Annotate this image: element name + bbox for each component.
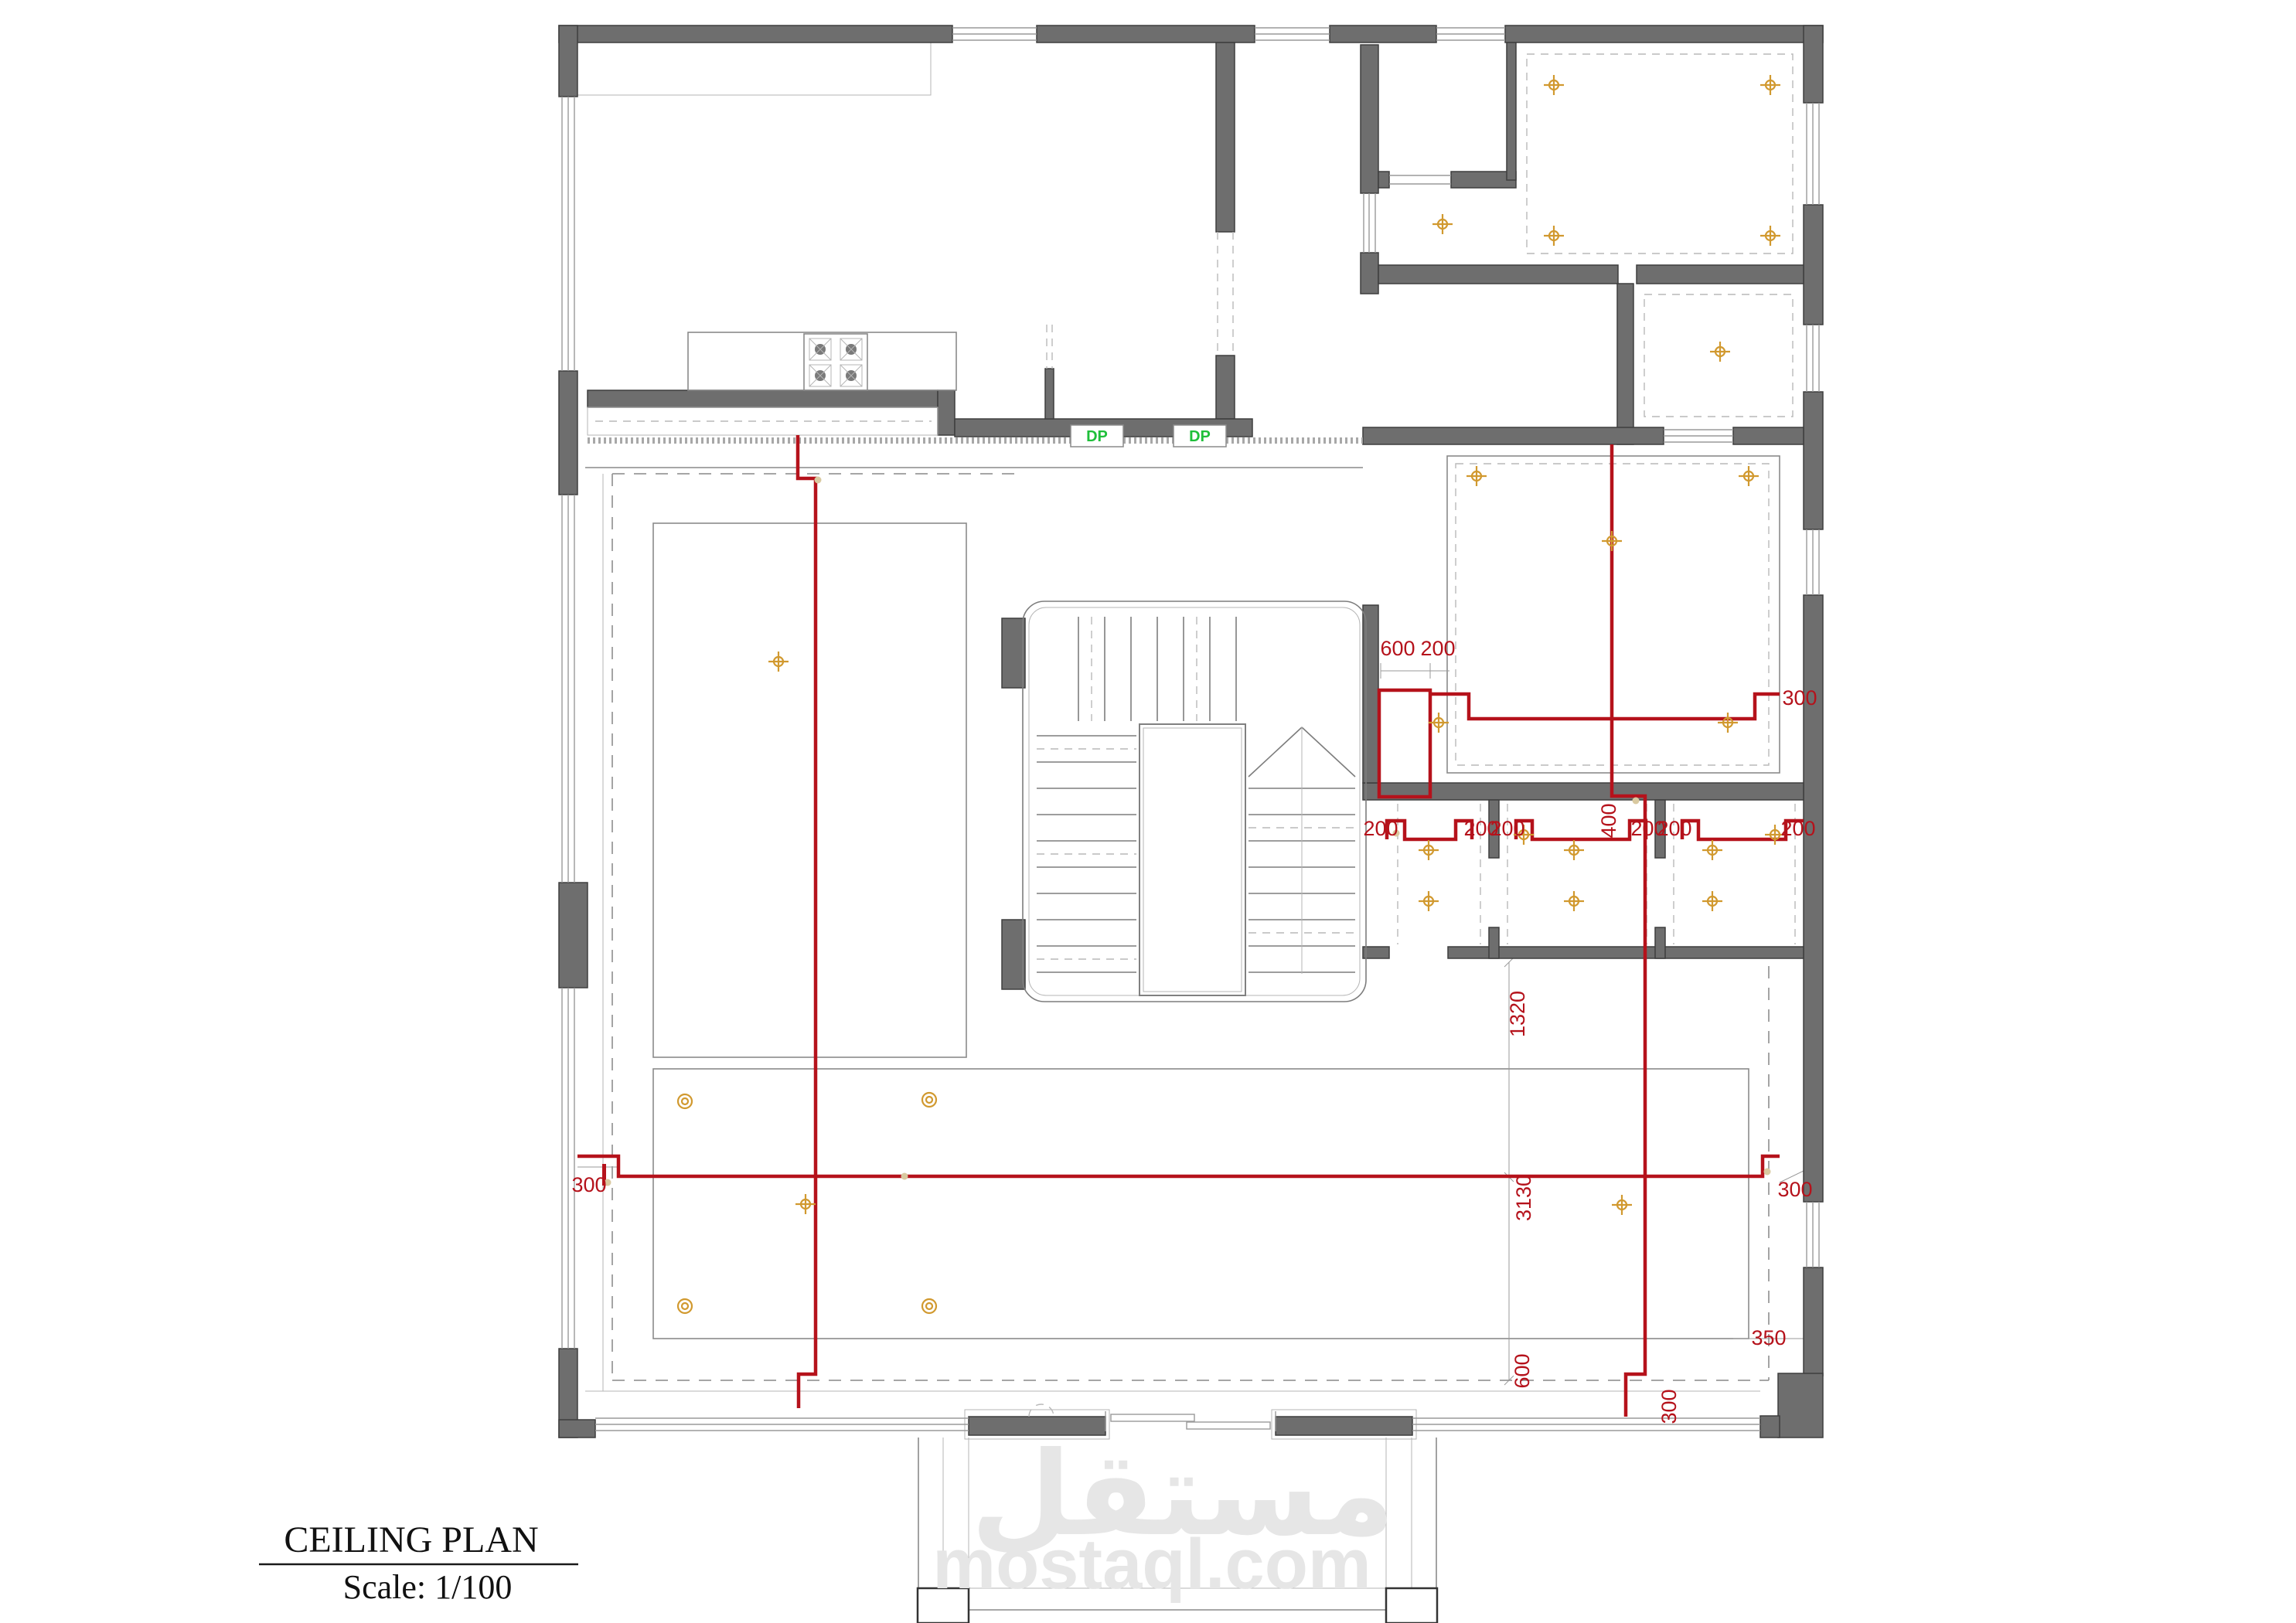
- window-bottom-left: [595, 1418, 969, 1431]
- window-master: [1664, 430, 1733, 442]
- red-line-bottom-horizontal: [577, 1156, 1780, 1176]
- ceiling-light-icon: [1710, 342, 1730, 362]
- ceiling-light-icon: [1702, 840, 1722, 860]
- page-title: CEILING PLAN: [284, 1519, 538, 1560]
- dim-label: 200: [1490, 817, 1524, 840]
- light-cross-set: [768, 75, 1785, 1215]
- light-round-set: [678, 1093, 936, 1313]
- window-bottom-right: [1412, 1418, 1760, 1431]
- dim-label: 300: [1657, 1389, 1681, 1424]
- ceiling-guides: [576, 43, 1804, 1391]
- dim-label: 300: [1782, 686, 1817, 709]
- ceiling-light-icon: [1564, 840, 1584, 860]
- dim-label: 300: [571, 1173, 606, 1196]
- red-corridor-cove-1: [1387, 821, 1472, 839]
- ceiling-light-round-icon: [678, 1094, 692, 1108]
- window-right-1: [1807, 103, 1819, 205]
- ceiling-light-icon: [1612, 1195, 1632, 1215]
- dim-label: 200: [1780, 817, 1815, 840]
- window-right-2: [1807, 325, 1819, 392]
- ceiling-light-icon: [1544, 226, 1564, 246]
- ceiling-light-round-icon: [678, 1299, 692, 1313]
- dim-label: 200: [1363, 817, 1398, 840]
- window-interior-1: [1364, 193, 1375, 253]
- floor-plan-svg: DP DP: [0, 0, 2296, 1623]
- ceiling-light-icon: [1432, 214, 1453, 234]
- stair-column-top: [1002, 618, 1025, 688]
- ceiling-lights: [678, 75, 1785, 1313]
- ceiling-light-icon: [1760, 75, 1780, 95]
- ceiling-light-icon: [1739, 466, 1759, 486]
- recessed-ceiling-bottom-arm: [653, 1069, 1749, 1339]
- window-right-3: [1807, 529, 1819, 595]
- window-left-2: [562, 495, 574, 883]
- ceiling-beam-band: [576, 43, 931, 95]
- ceiling-light-icon: [1419, 891, 1439, 911]
- scale-label: Scale: 1/100: [343, 1568, 513, 1606]
- ceiling-light-icon: [1467, 466, 1487, 486]
- stair-right-flight: [1248, 727, 1355, 974]
- window-right-4: [1807, 1202, 1819, 1267]
- ceiling-light-icon: [1544, 75, 1564, 95]
- ceiling-light-icon: [795, 1194, 816, 1214]
- red-bulkhead-box: [1379, 690, 1430, 797]
- ceiling-light-icon: [1760, 226, 1780, 246]
- dim-label: 1320: [1506, 991, 1529, 1037]
- red-line-left-vertical: [798, 435, 816, 1408]
- window-top-2: [1255, 28, 1330, 40]
- dim-label: 350: [1751, 1326, 1786, 1349]
- porch-step-right: [1386, 1588, 1437, 1623]
- ceiling-light-round-icon: [922, 1299, 936, 1313]
- kitchen-counter: [688, 332, 956, 390]
- dp-label-2: DP: [1189, 428, 1211, 445]
- dim-label: 600: [1511, 1353, 1534, 1388]
- ceiling-light-icon: [1564, 891, 1584, 911]
- red-corridor-cove-2: [1516, 821, 1646, 839]
- door-swing-arc: [1029, 1404, 1054, 1417]
- ceiling-light-icon: [1419, 840, 1439, 860]
- window-top-3: [1436, 28, 1505, 40]
- ceiling-light-icon: [1702, 891, 1722, 911]
- window-top-1: [952, 28, 1037, 40]
- dim-label: 3130: [1512, 1175, 1535, 1221]
- title-block: CEILING PLAN Scale: 1/100: [259, 1519, 578, 1606]
- dp-label-1: DP: [1086, 428, 1108, 445]
- drawing-sheet: DP DP: [0, 0, 2296, 1623]
- recessed-ceiling-left-arm: [653, 523, 966, 1057]
- ceiling-light-icon: [768, 652, 789, 672]
- staircase: [1023, 601, 1366, 1002]
- stair-left-flight: [1037, 736, 1136, 972]
- dim-label: 200: [1657, 817, 1691, 840]
- red-line-right-vertical: [1612, 444, 1645, 1417]
- dim-label: 400: [1597, 803, 1620, 838]
- dim-label: 600: [1380, 637, 1415, 660]
- window-left-1: [562, 97, 574, 371]
- stair-top-flight: [1078, 617, 1236, 721]
- watermark: مستقل mostaql.com: [932, 1427, 1395, 1604]
- dim-label: 300: [1777, 1178, 1812, 1201]
- ceiling-light-icon: [1718, 713, 1738, 733]
- stair-void: [1139, 724, 1245, 995]
- stove-burners: [809, 339, 862, 386]
- dim-label: 200: [1420, 637, 1455, 660]
- window-left-3: [562, 988, 574, 1349]
- ceiling-light-icon: [1602, 531, 1622, 551]
- ceiling-light-round-icon: [922, 1093, 936, 1107]
- watermark-latin: mostaql.com: [932, 1525, 1371, 1604]
- stair-column-bottom: [1002, 920, 1025, 989]
- left-wall-pier: [559, 883, 588, 988]
